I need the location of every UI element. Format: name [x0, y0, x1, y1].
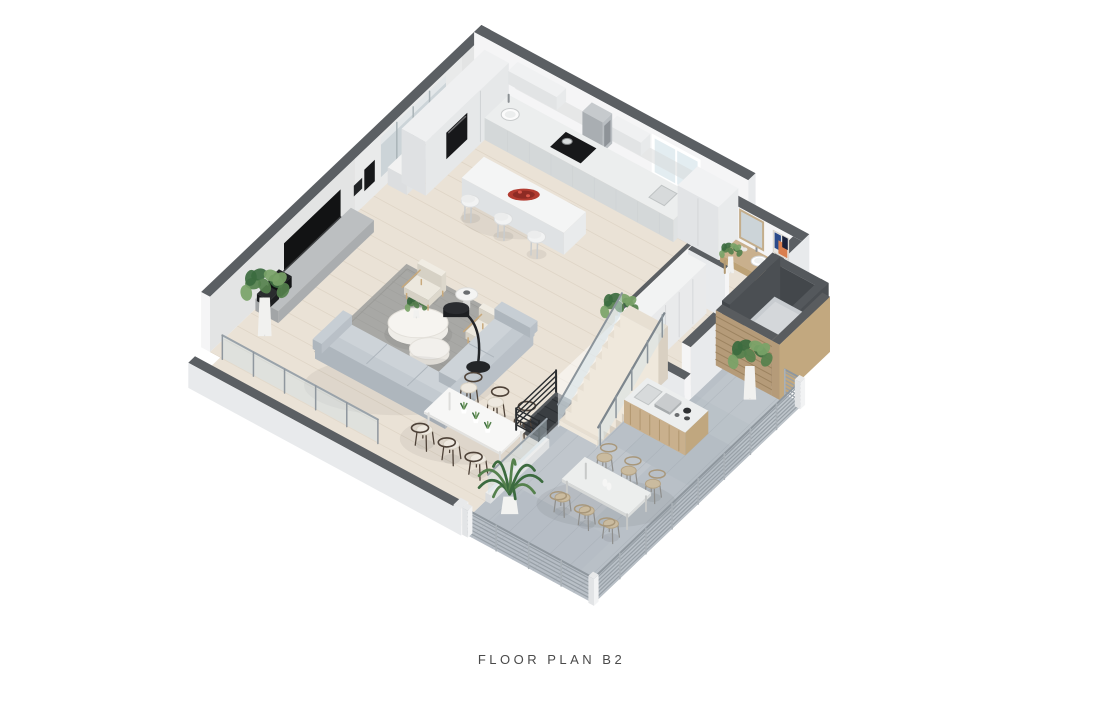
railing-post — [588, 572, 598, 606]
fruit-tray-icon — [508, 189, 540, 201]
railing-post — [795, 375, 805, 409]
railing-post — [462, 503, 472, 537]
floor-plan-page: FLOOR PLAN B2 — [0, 0, 1103, 712]
floor-plan-caption: FLOOR PLAN B2 — [0, 652, 1103, 667]
floor-plan-3d-render — [0, 0, 1103, 712]
